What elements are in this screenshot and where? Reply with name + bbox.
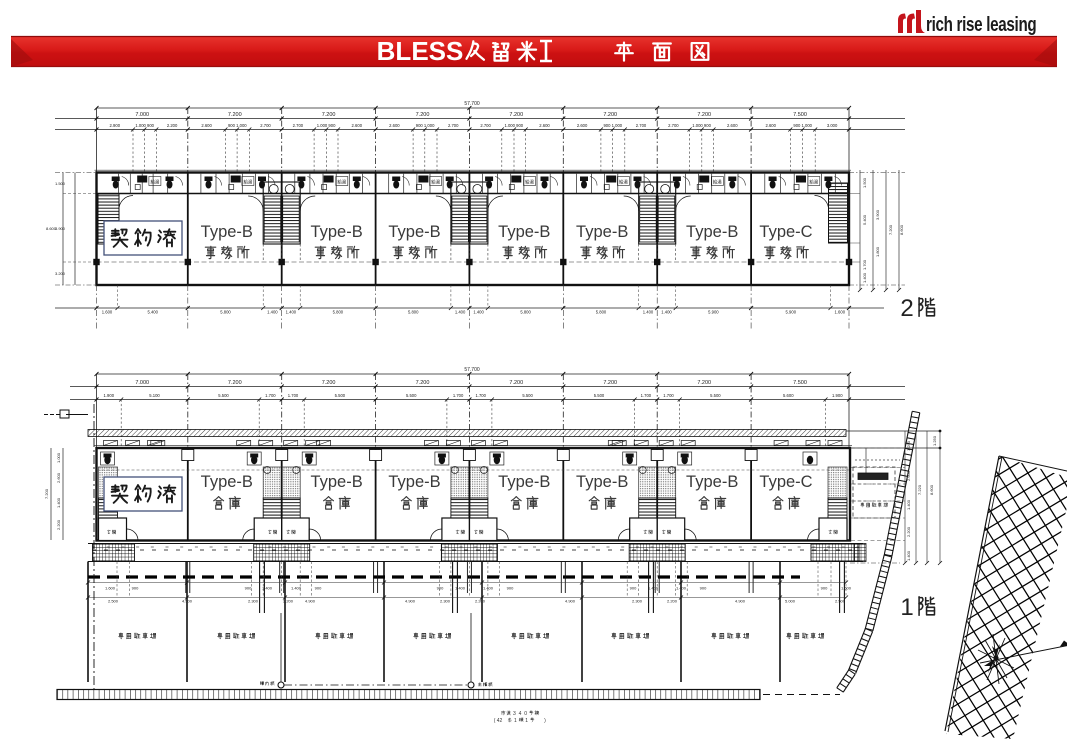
svg-text:900: 900 <box>821 586 828 591</box>
svg-text:5.800: 5.800 <box>520 310 531 315</box>
svg-text:1.000 900: 1.000 900 <box>504 123 523 128</box>
svg-text:57.700: 57.700 <box>464 367 480 373</box>
svg-text:1.000: 1.000 <box>56 452 61 463</box>
svg-text:2.700: 2.700 <box>668 123 679 128</box>
svg-text:2.300: 2.300 <box>440 599 451 604</box>
svg-text:1.700: 1.700 <box>288 393 299 398</box>
svg-text:Type-B: Type-B <box>686 473 738 491</box>
svg-text:1.400: 1.400 <box>661 310 672 315</box>
svg-text:7.200: 7.200 <box>888 224 893 235</box>
svg-text:1.600: 1.600 <box>105 586 116 591</box>
svg-text:1: 1 <box>514 718 517 724</box>
svg-text:給湯: 給湯 <box>525 179 534 186</box>
svg-text:Type-B: Type-B <box>201 473 253 491</box>
svg-text:3.200: 3.200 <box>55 271 66 276</box>
svg-text:2.700: 2.700 <box>636 123 647 128</box>
svg-text:7.200: 7.200 <box>603 112 617 118</box>
svg-text:900: 900 <box>437 586 444 591</box>
svg-text:5.100: 5.100 <box>149 393 160 398</box>
svg-text:2.600: 2.600 <box>389 123 400 128</box>
svg-text:7.200: 7.200 <box>44 488 49 499</box>
svg-text:2.200: 2.200 <box>283 599 294 604</box>
svg-text:1.500: 1.500 <box>55 181 66 186</box>
svg-text:1.400: 1.400 <box>643 310 654 315</box>
svg-text:1.700: 1.700 <box>641 393 652 398</box>
svg-text:2.500: 2.500 <box>108 599 119 604</box>
svg-text:57.700: 57.700 <box>464 101 480 107</box>
svg-text:Type-B: Type-B <box>576 223 628 241</box>
svg-text:Type-B: Type-B <box>686 223 738 241</box>
svg-text:給湯: 給湯 <box>713 179 722 186</box>
svg-text:2.600: 2.600 <box>201 123 212 128</box>
svg-text:1.900: 1.900 <box>832 393 843 398</box>
svg-text:7.000: 7.000 <box>135 112 149 118</box>
svg-text:Type-B: Type-B <box>201 223 253 241</box>
svg-text:1.800: 1.800 <box>875 246 880 257</box>
svg-text:2.700: 2.700 <box>293 123 304 128</box>
svg-text:1.400: 1.400 <box>906 550 911 561</box>
svg-text:7.200: 7.200 <box>697 112 711 118</box>
svg-text:1.250: 1.250 <box>906 440 911 451</box>
svg-text:7.000: 7.000 <box>135 380 149 386</box>
svg-text:900: 900 <box>630 586 637 591</box>
svg-text:4.900: 4.900 <box>565 599 576 604</box>
svg-text:1: 1 <box>900 594 913 621</box>
svg-text:2.600: 2.600 <box>765 123 776 128</box>
svg-text:1.700: 1.700 <box>862 259 867 270</box>
svg-text:5.900: 5.900 <box>708 310 719 315</box>
svg-text:給湯: 給湯 <box>151 179 160 186</box>
svg-text:1.400: 1.400 <box>906 499 911 510</box>
svg-text:1.900: 1.900 <box>104 393 115 398</box>
svg-text:2.600: 2.600 <box>352 123 363 128</box>
svg-text:900 1.000: 900 1.000 <box>228 123 247 128</box>
svg-text:給湯: 給湯 <box>431 179 440 186</box>
svg-text:Type-C: Type-C <box>759 473 812 491</box>
svg-text:7.500: 7.500 <box>793 112 807 118</box>
svg-text:5.500: 5.500 <box>710 393 721 398</box>
svg-text:1.400: 1.400 <box>262 586 273 591</box>
svg-text:900: 900 <box>315 586 322 591</box>
svg-text:5.500: 5.500 <box>594 393 605 398</box>
svg-text:900: 900 <box>507 586 514 591</box>
svg-text:2.200: 2.200 <box>667 599 678 604</box>
svg-text:1.400: 1.400 <box>455 586 466 591</box>
svg-text:7.200: 7.200 <box>416 112 430 118</box>
svg-text:5.400: 5.400 <box>147 310 158 315</box>
svg-text:5.800: 5.800 <box>408 310 419 315</box>
svg-text:1.400: 1.400 <box>455 310 466 315</box>
svg-text:): ) <box>544 718 546 724</box>
svg-text:4.900: 4.900 <box>735 599 746 604</box>
svg-text:1.500: 1.500 <box>862 177 867 188</box>
svg-text:1.600: 1.600 <box>841 586 852 591</box>
svg-text:7.200: 7.200 <box>509 380 523 386</box>
svg-text:2.300: 2.300 <box>632 599 643 604</box>
svg-text:Type-B: Type-B <box>388 473 440 491</box>
svg-text:5.600: 5.600 <box>783 393 794 398</box>
svg-text:3: 3 <box>513 711 516 717</box>
svg-text:1.600: 1.600 <box>102 310 113 315</box>
svg-text:7.200: 7.200 <box>603 380 617 386</box>
svg-text:8.600: 8.600 <box>899 224 904 235</box>
svg-text:7.500: 7.500 <box>793 380 807 386</box>
svg-text:2.600: 2.600 <box>906 470 911 481</box>
svg-text:4.900: 4.900 <box>405 599 416 604</box>
svg-text:rich rise leasing: rich rise leasing <box>926 13 1036 36</box>
svg-text:5.800: 5.800 <box>220 310 231 315</box>
svg-text:7.200: 7.200 <box>322 380 336 386</box>
svg-text:2.600: 2.600 <box>539 123 550 128</box>
svg-text:7.200: 7.200 <box>228 380 242 386</box>
svg-text:7.200: 7.200 <box>416 380 430 386</box>
svg-text:1.700: 1.700 <box>475 393 486 398</box>
svg-text:1.400: 1.400 <box>286 310 297 315</box>
svg-text:8.600: 8.600 <box>929 484 934 495</box>
svg-text:1.400: 1.400 <box>473 310 484 315</box>
svg-text:BLESS: BLESS <box>377 36 464 66</box>
svg-text:7.200: 7.200 <box>509 112 523 118</box>
svg-text:1.000 900: 1.000 900 <box>692 123 711 128</box>
svg-text:5.400: 5.400 <box>862 214 867 225</box>
svg-text:1.400: 1.400 <box>267 310 278 315</box>
svg-text:給湯: 給湯 <box>244 179 253 186</box>
svg-text:5.900: 5.900 <box>786 310 797 315</box>
svg-text:1.700: 1.700 <box>453 393 464 398</box>
svg-text:3.900: 3.900 <box>875 209 880 220</box>
svg-text:5.000: 5.000 <box>785 599 796 604</box>
svg-text:5.500: 5.500 <box>335 393 346 398</box>
svg-text:5.800: 5.800 <box>596 310 607 315</box>
svg-text:5.500: 5.500 <box>406 393 417 398</box>
svg-text:Type-B: Type-B <box>310 473 362 491</box>
svg-text:1.000 900: 1.000 900 <box>317 123 336 128</box>
svg-text:2.200: 2.200 <box>167 123 178 128</box>
svg-text:7.200: 7.200 <box>322 112 336 118</box>
svg-text:2.700: 2.700 <box>480 123 491 128</box>
svg-text:900: 900 <box>245 586 252 591</box>
svg-text:900: 900 <box>700 586 707 591</box>
svg-text:Type-B: Type-B <box>498 223 550 241</box>
svg-text:1: 1 <box>525 718 528 724</box>
svg-text:1.400: 1.400 <box>648 586 659 591</box>
svg-text:1.400: 1.400 <box>862 272 867 283</box>
svg-text:2.300: 2.300 <box>248 599 259 604</box>
svg-text:1.700: 1.700 <box>663 393 674 398</box>
svg-text:2.600: 2.600 <box>727 123 738 128</box>
svg-text:2.200: 2.200 <box>56 519 61 530</box>
svg-text:4.500: 4.500 <box>182 599 193 604</box>
svg-text:8.600: 8.600 <box>46 226 57 231</box>
svg-text:Type-B: Type-B <box>388 223 440 241</box>
svg-text:2.600: 2.600 <box>56 472 61 483</box>
svg-text:1.400: 1.400 <box>291 586 302 591</box>
svg-text:7.200: 7.200 <box>697 380 711 386</box>
svg-text:3.000: 3.000 <box>827 123 838 128</box>
svg-text:給湯: 給湯 <box>337 179 346 186</box>
svg-text:5.500: 5.500 <box>522 393 533 398</box>
svg-text:1.250: 1.250 <box>932 435 937 446</box>
svg-text:900: 900 <box>132 586 139 591</box>
svg-text:1.600: 1.600 <box>835 310 846 315</box>
svg-text:2.600: 2.600 <box>577 123 588 128</box>
svg-text:( 42: ( 42 <box>494 718 503 724</box>
svg-text:5.500: 5.500 <box>218 393 229 398</box>
svg-text:1.400: 1.400 <box>56 497 61 508</box>
svg-text:給湯: 給湯 <box>809 179 818 186</box>
svg-text:1.400: 1.400 <box>676 586 687 591</box>
svg-text:2.700: 2.700 <box>260 123 271 128</box>
svg-text:Type-B: Type-B <box>576 473 628 491</box>
svg-text:7.200: 7.200 <box>228 112 242 118</box>
svg-text:4: 4 <box>519 711 522 717</box>
svg-text:2.200: 2.200 <box>906 526 911 537</box>
svg-text:1.700: 1.700 <box>265 393 276 398</box>
svg-text:0: 0 <box>524 711 527 717</box>
svg-text:900 1.000: 900 1.000 <box>603 123 622 128</box>
svg-text:給湯: 給湯 <box>619 179 628 186</box>
svg-text:2.900: 2.900 <box>110 123 121 128</box>
svg-text:1.400: 1.400 <box>483 586 494 591</box>
svg-text:Type-B: Type-B <box>310 223 362 241</box>
svg-text:Type-B: Type-B <box>498 473 550 491</box>
svg-text:2: 2 <box>900 295 913 322</box>
svg-text:2.700: 2.700 <box>448 123 459 128</box>
svg-text:7.220: 7.220 <box>917 484 922 495</box>
svg-text:4.900: 4.900 <box>305 599 316 604</box>
svg-text:900 1.000: 900 1.000 <box>416 123 435 128</box>
svg-text:5.800: 5.800 <box>333 310 344 315</box>
svg-text:3.900: 3.900 <box>55 226 66 231</box>
svg-text:Type-C: Type-C <box>759 223 812 241</box>
svg-text:1.000 900: 1.000 900 <box>135 123 154 128</box>
svg-text:900 1.000: 900 1.000 <box>793 123 812 128</box>
